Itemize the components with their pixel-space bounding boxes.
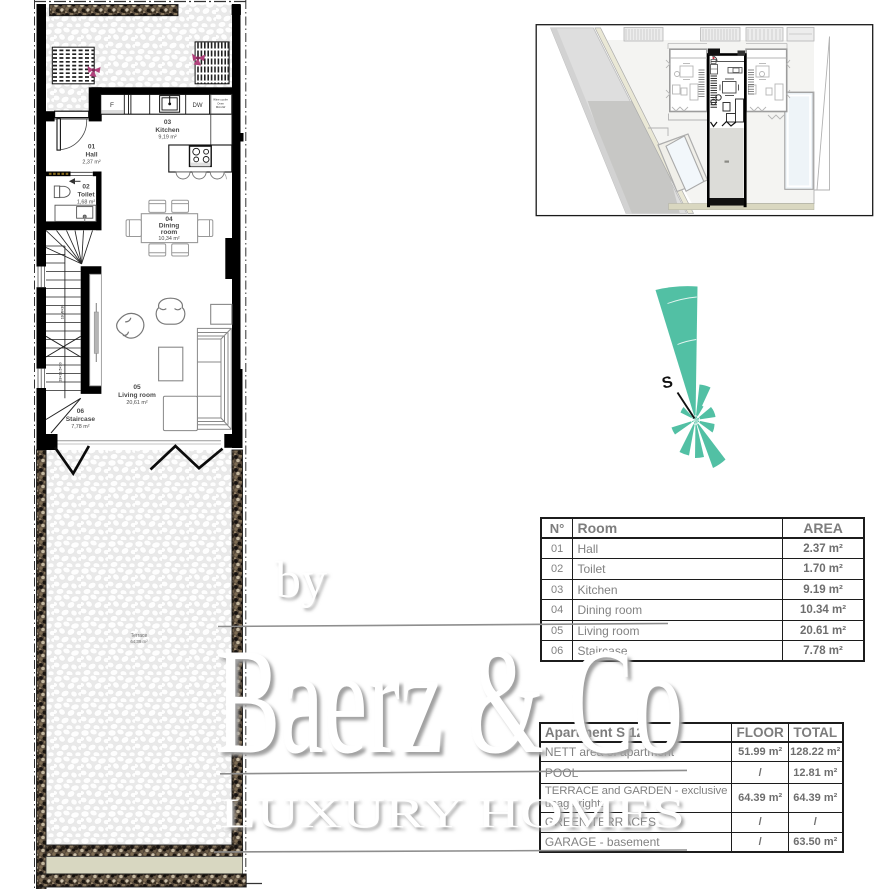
svg-text:03: 03 [164, 119, 172, 126]
svg-text:06: 06 [77, 408, 85, 415]
svg-text:Staircase: Staircase [66, 416, 96, 423]
svg-text:1,68 m²: 1,68 m² [77, 200, 95, 206]
svg-text:S: S [660, 374, 674, 393]
svg-text:Living room: Living room [118, 392, 156, 399]
svg-text:Toilet: Toilet [77, 192, 95, 199]
svg-text:01: 01 [88, 144, 96, 151]
svg-text:2,37 m²: 2,37 m² [82, 160, 100, 166]
svg-text:20,61 m²: 20,61 m² [126, 400, 147, 406]
svg-text:19 W×30: 19 W×30 [61, 305, 65, 319]
svg-text:19×16.5×30: 19×16.5×30 [59, 362, 63, 381]
svg-text:room: room [161, 229, 178, 236]
svg-text:Kitchen: Kitchen [155, 127, 179, 134]
svg-text:MicroW: MicroW [216, 105, 226, 109]
svg-text:9,19 m²: 9,19 m² [158, 135, 176, 141]
svg-text:10,34 m²: 10,34 m² [158, 236, 179, 242]
svg-text:DW: DW [193, 103, 203, 109]
svg-text:05: 05 [133, 384, 141, 391]
svg-text:F: F [110, 102, 114, 109]
svg-text:7,78 m²: 7,78 m² [71, 424, 89, 430]
svg-text:02: 02 [82, 184, 90, 191]
svg-text:64,39 m²: 64,39 m² [130, 639, 148, 644]
svg-text:Hall: Hall [85, 152, 97, 159]
